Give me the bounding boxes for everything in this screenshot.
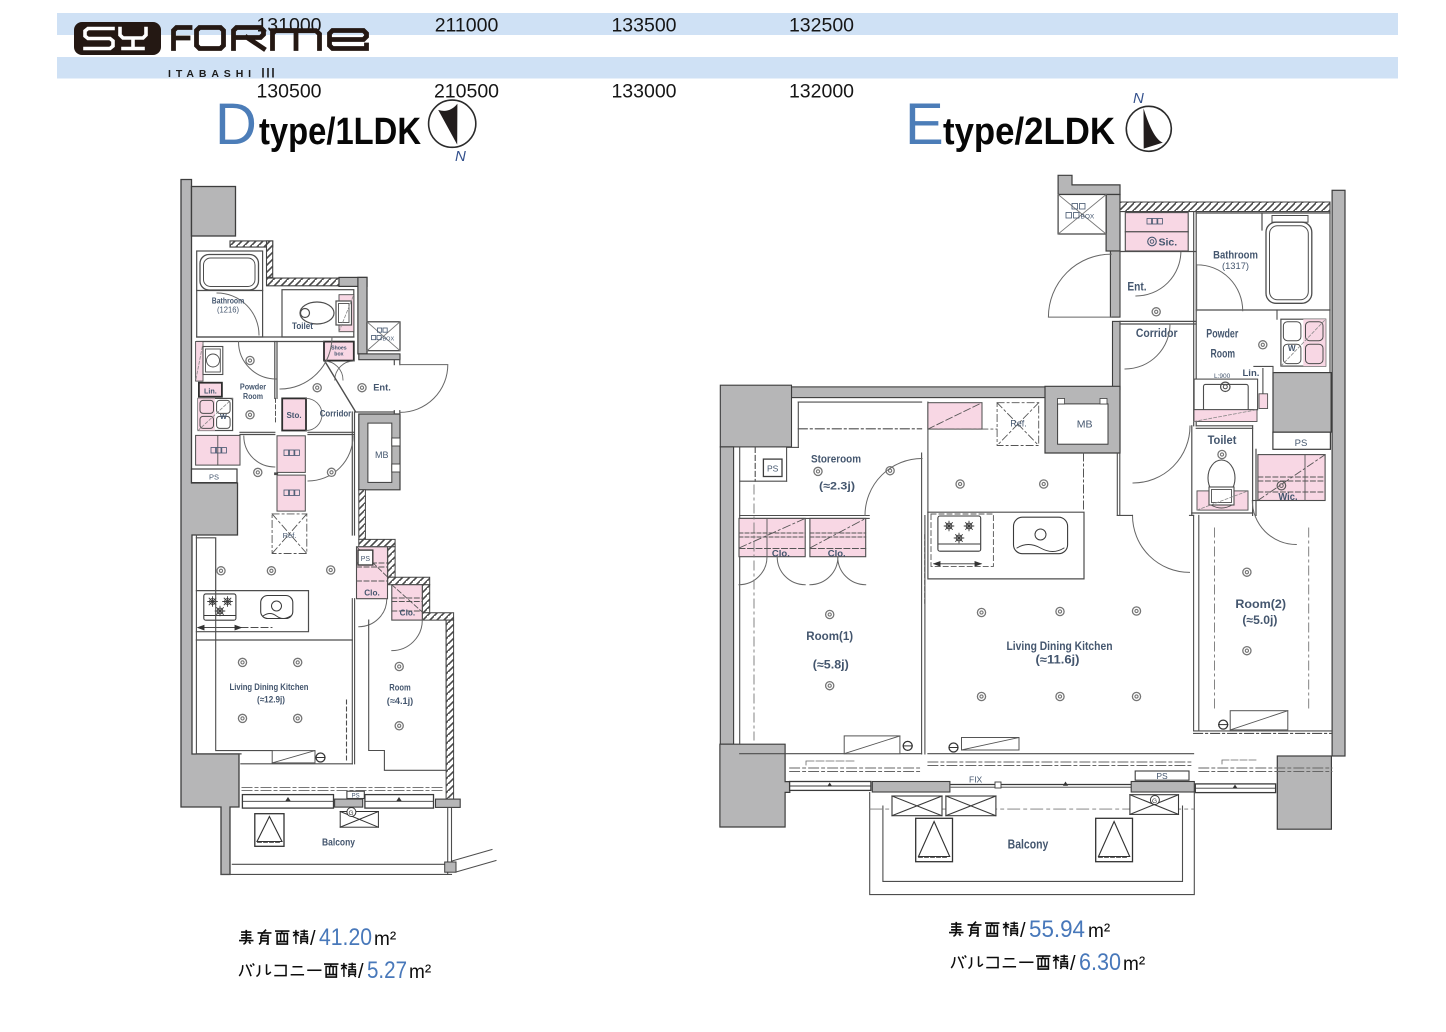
svg-text:Clo.: Clo. xyxy=(772,549,790,560)
svg-text:ITABASHI: ITABASHI xyxy=(168,68,256,80)
svg-text:Corridor: Corridor xyxy=(1136,328,1178,340)
svg-text:130500: 130500 xyxy=(256,81,321,103)
svg-text:/: / xyxy=(1020,920,1026,942)
svg-text:D: D xyxy=(215,92,257,157)
svg-text:Wic.: Wic. xyxy=(1278,492,1297,503)
svg-text:Room(2): Room(2) xyxy=(1235,597,1286,611)
svg-text:MB: MB xyxy=(1077,419,1093,431)
svg-text:m²: m² xyxy=(1123,954,1145,975)
svg-text:Clo.: Clo. xyxy=(828,549,846,560)
svg-text:W: W xyxy=(220,412,227,421)
svg-text:m²: m² xyxy=(374,929,396,950)
svg-text:/: / xyxy=(310,928,316,950)
svg-text:Clo.: Clo. xyxy=(400,608,415,617)
svg-text:Lin.: Lin. xyxy=(1243,368,1260,379)
svg-text:FIX: FIX xyxy=(969,775,983,785)
svg-text:Room(1): Room(1) xyxy=(806,629,853,643)
svg-text:N: N xyxy=(1133,90,1144,107)
svg-text:(≈2.3j): (≈2.3j) xyxy=(819,481,855,493)
svg-text:Sic.: Sic. xyxy=(1159,237,1178,249)
svg-text:Powder: Powder xyxy=(1206,328,1238,340)
svg-text:G: G xyxy=(349,810,354,817)
svg-text:Balcony: Balcony xyxy=(322,837,355,849)
svg-text:MB: MB xyxy=(375,450,389,460)
svg-text:PS: PS xyxy=(361,556,371,563)
svg-text:Toilet: Toilet xyxy=(1208,435,1237,447)
svg-text:(≈5.8j): (≈5.8j) xyxy=(813,660,849,672)
svg-text:55.94: 55.94 xyxy=(1029,916,1085,943)
svg-text:L:900: L:900 xyxy=(1214,373,1231,380)
svg-text:PS: PS xyxy=(209,473,219,482)
svg-text:41.20: 41.20 xyxy=(319,924,372,951)
svg-text:Toilet: Toilet xyxy=(292,321,313,331)
svg-text:m²: m² xyxy=(1088,921,1110,942)
svg-text:Corridor: Corridor xyxy=(320,409,352,419)
svg-text:132500: 132500 xyxy=(789,15,854,37)
svg-text:Storeroom: Storeroom xyxy=(811,454,861,466)
svg-text:131000: 131000 xyxy=(256,15,321,37)
svg-text:type/1LDK: type/1LDK xyxy=(259,111,421,153)
svg-text:211000: 211000 xyxy=(435,15,499,37)
svg-text:BOX: BOX xyxy=(1081,214,1095,221)
svg-text:N: N xyxy=(455,148,466,165)
svg-text:Living Dining Kitchen: Living Dining Kitchen xyxy=(230,682,309,692)
svg-text:Ref.: Ref. xyxy=(1010,419,1027,429)
svg-text:type/2LDK: type/2LDK xyxy=(943,111,1116,153)
svg-text:Bathroom: Bathroom xyxy=(1213,250,1258,262)
svg-text:G: G xyxy=(1152,798,1157,805)
svg-text:Clo.: Clo. xyxy=(364,589,379,598)
svg-text:Sto.: Sto. xyxy=(286,411,301,420)
svg-text:Ent.: Ent. xyxy=(1127,282,1146,294)
svg-text:133500: 133500 xyxy=(611,15,676,37)
svg-text:Room: Room xyxy=(389,683,410,693)
svg-text:PS: PS xyxy=(767,464,779,474)
svg-text:Room: Room xyxy=(243,391,263,401)
svg-text:5.27: 5.27 xyxy=(367,957,407,984)
svg-text:(1216): (1216) xyxy=(217,306,239,315)
svg-text:132000: 132000 xyxy=(789,81,854,103)
svg-text:6.30: 6.30 xyxy=(1079,949,1121,976)
svg-text:Room: Room xyxy=(1211,348,1236,360)
svg-text:210500: 210500 xyxy=(434,81,499,103)
svg-text:Ref.: Ref. xyxy=(283,531,297,540)
svg-text:(≈12.9j): (≈12.9j) xyxy=(257,695,285,705)
svg-text:133000: 133000 xyxy=(611,81,676,103)
svg-text:Ent.: Ent. xyxy=(373,383,391,393)
svg-text:W: W xyxy=(1288,344,1296,353)
svg-text:PS: PS xyxy=(1156,771,1168,781)
svg-text:(≈5.0j): (≈5.0j) xyxy=(1242,615,1277,627)
svg-text:Bathroom: Bathroom xyxy=(212,296,245,306)
svg-text:Lin.: Lin. xyxy=(204,386,217,395)
svg-text:E: E xyxy=(905,92,944,157)
svg-text:BOX: BOX xyxy=(383,337,395,343)
svg-text:(≈4.1j): (≈4.1j) xyxy=(387,696,413,706)
svg-text:/: / xyxy=(358,961,364,983)
svg-text:Living Dining Kitchen: Living Dining Kitchen xyxy=(1007,641,1113,653)
svg-text:(≈11.6j): (≈11.6j) xyxy=(1036,655,1080,667)
svg-text:PS: PS xyxy=(1295,438,1308,449)
svg-text:PS: PS xyxy=(352,794,360,800)
svg-text:Balcony: Balcony xyxy=(1008,838,1049,852)
svg-text:(1317): (1317) xyxy=(1222,261,1249,271)
svg-text:box: box xyxy=(334,352,343,358)
svg-text:m²: m² xyxy=(409,962,431,983)
svg-text:Powder: Powder xyxy=(240,382,267,392)
svg-text:/: / xyxy=(1070,953,1076,975)
